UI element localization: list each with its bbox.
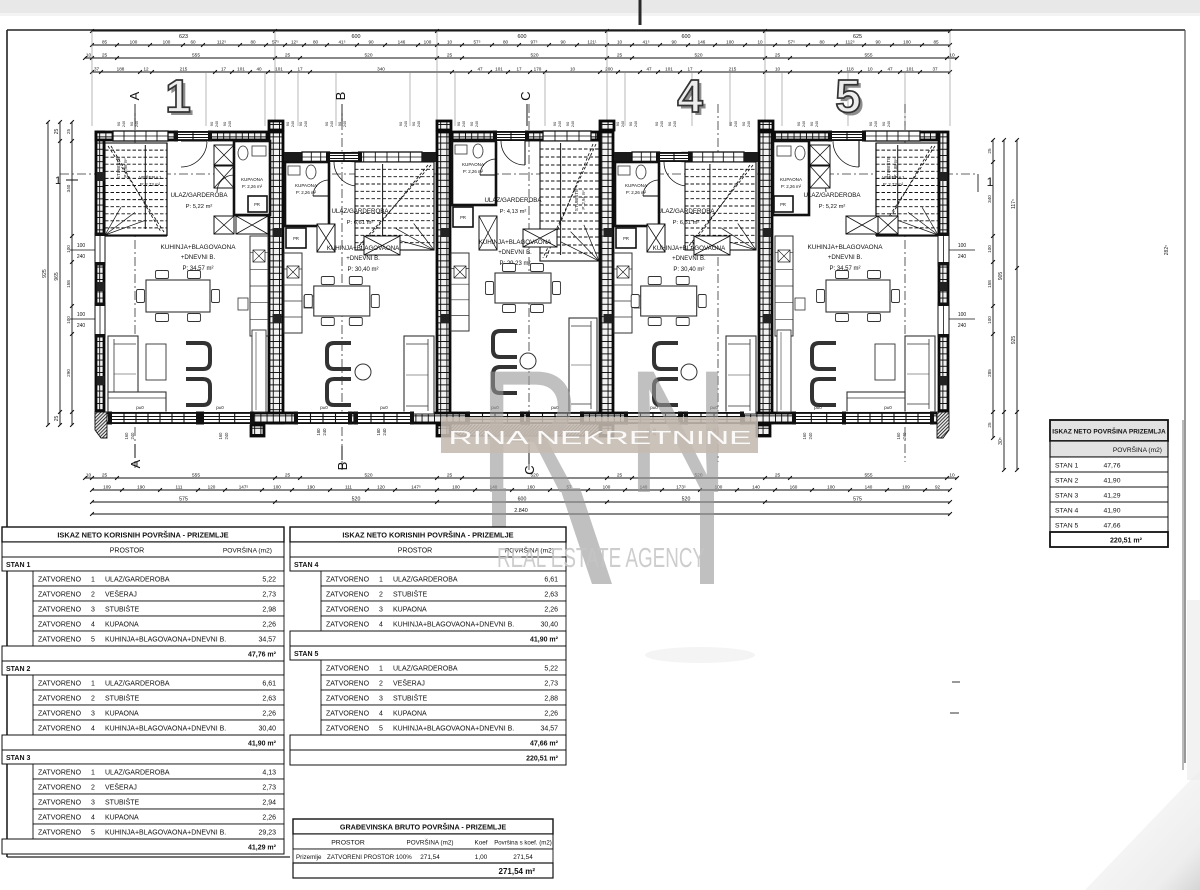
svg-text:90: 90 [222, 121, 227, 126]
svg-text:10: 10 [617, 40, 623, 45]
svg-text:25: 25 [54, 416, 60, 422]
svg-text:2,94: 2,94 [262, 800, 276, 807]
svg-text:90: 90 [565, 121, 570, 126]
svg-text:10: 10 [757, 40, 763, 45]
svg-text:STAN 4: STAN 4 [294, 562, 318, 569]
svg-text:158: 158 [987, 280, 992, 288]
svg-text:90: 90 [469, 121, 474, 126]
svg-text:POVRŠINA (m2): POVRŠINA (m2) [223, 546, 272, 555]
svg-text:240: 240 [77, 254, 86, 260]
svg-text:p±0: p±0 [136, 405, 144, 410]
svg-text:240: 240 [802, 121, 806, 127]
svg-text:190: 190 [307, 485, 315, 490]
svg-text:160: 160 [802, 432, 807, 440]
svg-text:STUBIŠTE: STUBIŠTE [115, 157, 121, 179]
svg-text:C: C [518, 91, 533, 100]
svg-text:47,66 m²: 47,66 m² [530, 741, 559, 748]
svg-text:2,63: 2,63 [544, 592, 558, 599]
svg-text:340: 340 [987, 195, 992, 203]
svg-text:p±0: p±0 [216, 405, 224, 410]
svg-text:282⁵: 282⁵ [1164, 245, 1170, 255]
svg-text:80: 80 [503, 40, 509, 45]
svg-text:180: 180 [376, 428, 381, 436]
svg-text:90: 90 [552, 121, 557, 126]
svg-text:2: 2 [91, 592, 95, 599]
svg-text:ZATVORENO: ZATVORENO [38, 637, 82, 644]
svg-text:KUHINJA+BLAGOVAONA: KUHINJA+BLAGOVAONA [479, 239, 552, 246]
svg-text:25: 25 [775, 473, 781, 479]
svg-text:p±0: p±0 [320, 405, 328, 410]
svg-text:12⁵: 12⁵ [291, 40, 298, 45]
svg-text:25: 25 [54, 129, 60, 135]
svg-text:2: 2 [379, 592, 383, 599]
svg-text:ZATVORENO: ZATVORENO [326, 726, 370, 733]
svg-text:P: 2,26 m²: P: 2,26 m² [242, 184, 263, 189]
svg-text:158: 158 [66, 280, 71, 288]
svg-text:41,90 m²: 41,90 m² [530, 637, 559, 644]
svg-text:4: 4 [379, 711, 383, 718]
svg-text:271,54 m²: 271,54 m² [499, 867, 536, 876]
svg-text:3: 3 [379, 696, 383, 703]
svg-text:ZATVORENO: ZATVORENO [326, 711, 370, 718]
svg-text:160: 160 [218, 432, 223, 440]
svg-text:p±0: p±0 [380, 405, 388, 410]
svg-text:80: 80 [819, 40, 825, 45]
svg-text:100: 100 [66, 316, 71, 324]
svg-text:3: 3 [379, 607, 383, 614]
svg-text:+DNEVNI B.: +DNEVNI B. [181, 254, 216, 261]
svg-text:STAN 1: STAN 1 [1055, 463, 1079, 470]
svg-text:146: 146 [398, 40, 406, 45]
svg-text:117⁵: 117⁵ [1011, 199, 1017, 209]
svg-text:240: 240 [815, 121, 819, 127]
svg-text:10: 10 [775, 67, 781, 72]
svg-text:6,61: 6,61 [544, 577, 558, 584]
svg-text:240: 240 [634, 121, 638, 127]
svg-text:80: 80 [313, 40, 319, 45]
svg-text:240: 240 [330, 121, 334, 127]
svg-text:1,00: 1,00 [475, 854, 488, 861]
svg-text:ULAZ/GARDEROBA: ULAZ/GARDEROBA [657, 208, 715, 215]
svg-text:P: 6,61 m²: P: 6,61 m² [347, 220, 374, 226]
svg-text:ZATVORENO: ZATVORENO [326, 681, 370, 688]
svg-text:215: 215 [729, 67, 737, 72]
svg-text:1: 1 [165, 70, 191, 122]
svg-text:120: 120 [377, 485, 385, 490]
svg-text:101: 101 [237, 67, 245, 72]
svg-text:4: 4 [379, 622, 383, 629]
svg-text:VEŠERAJ: VEŠERAJ [105, 783, 137, 792]
svg-text:ULAZ/GARDEROBA: ULAZ/GARDEROBA [484, 197, 542, 204]
svg-text:5: 5 [91, 830, 95, 837]
svg-text:100: 100 [726, 40, 734, 45]
svg-text:41,90: 41,90 [1103, 478, 1120, 485]
svg-text:90: 90 [116, 121, 121, 126]
svg-text:ULAZ/GARDEROBA: ULAZ/GARDEROBA [393, 666, 458, 673]
svg-text:112⁵: 112⁵ [845, 40, 854, 45]
svg-text:240: 240 [673, 121, 677, 127]
svg-text:3: 3 [91, 800, 95, 807]
svg-text:100: 100 [958, 243, 967, 249]
svg-text:555: 555 [192, 53, 200, 59]
svg-text:240: 240 [734, 121, 738, 127]
svg-text:P: 5,22 m²: P: 5,22 m² [819, 204, 846, 210]
svg-text:KUPAONA: KUPAONA [462, 162, 485, 167]
svg-text:90: 90 [398, 121, 403, 126]
svg-text:KUPAONA: KUPAONA [105, 815, 139, 822]
svg-text:KUPAONA: KUPAONA [393, 607, 427, 614]
svg-text:B: B [333, 92, 348, 101]
svg-text:240: 240 [404, 121, 408, 127]
svg-text:100: 100 [603, 485, 611, 490]
svg-text:47: 47 [477, 67, 483, 72]
svg-text:STAN 5: STAN 5 [294, 651, 318, 658]
svg-text:140: 140 [752, 485, 760, 490]
svg-text:40: 40 [256, 67, 262, 72]
svg-text:KUHINJA+BLAGOVAONA+DNEVNI B.: KUHINJA+BLAGOVAONA+DNEVNI B. [105, 726, 226, 733]
svg-text:623: 623 [179, 34, 188, 40]
svg-text:POVRŠINA (m2): POVRŠINA (m2) [1113, 445, 1162, 454]
svg-text:Prizemlje: Prizemlje [296, 854, 322, 861]
svg-text:2,26: 2,26 [262, 815, 276, 822]
svg-text:100: 100 [77, 312, 86, 318]
svg-text:17: 17 [221, 67, 227, 72]
svg-text:ULAZ/GARDEROBA: ULAZ/GARDEROBA [105, 681, 170, 688]
svg-text:57⁵: 57⁵ [473, 40, 480, 45]
svg-text:p±0: p±0 [814, 405, 822, 410]
svg-text:240: 240 [224, 432, 229, 440]
svg-text:240: 240 [902, 432, 907, 440]
svg-text:ULAZ/GARDEROBA: ULAZ/GARDEROBA [105, 577, 170, 584]
svg-text:P: 30,40 m²: P: 30,40 m² [347, 267, 378, 273]
svg-text:170: 170 [534, 67, 542, 72]
svg-text:4: 4 [677, 70, 703, 122]
svg-text:ULAZ/GARDEROBA: ULAZ/GARDEROBA [170, 192, 228, 199]
svg-text:ZATVORENO: ZATVORENO [38, 785, 82, 792]
svg-text:ZATVORENO: ZATVORENO [38, 577, 82, 584]
svg-text:160: 160 [124, 432, 129, 440]
svg-text:100: 100 [827, 485, 835, 490]
svg-text:109: 109 [902, 485, 910, 490]
svg-text:PR: PR [254, 202, 260, 207]
svg-text:121¹: 121¹ [587, 40, 597, 45]
svg-text:147⁵: 147⁵ [239, 485, 249, 490]
svg-text:P: 2,88 m²: P: 2,88 m² [893, 158, 898, 178]
svg-text:ISKAZ NETO POVRŠINA PRIZEMLJA: ISKAZ NETO POVRŠINA PRIZEMLJA [1052, 427, 1166, 436]
svg-text:25: 25 [447, 53, 453, 59]
svg-text:STUBIŠTE: STUBIŠTE [105, 798, 140, 807]
svg-text:KUPAONA: KUPAONA [241, 177, 264, 182]
svg-text:188: 188 [117, 67, 125, 72]
svg-text:90: 90 [560, 40, 566, 45]
svg-text:147⁵: 147⁵ [411, 485, 421, 490]
svg-text:25: 25 [987, 148, 992, 154]
svg-text:100: 100 [987, 245, 992, 253]
svg-text:p±0: p±0 [884, 405, 892, 410]
svg-text:2,73: 2,73 [262, 592, 276, 599]
svg-text:220,51 m²: 220,51 m² [526, 756, 559, 763]
svg-text:ZATVORENO: ZATVORENO [38, 592, 82, 599]
svg-text:925: 925 [42, 269, 48, 278]
svg-text:2,26: 2,26 [262, 711, 276, 718]
svg-text:2,73: 2,73 [544, 681, 558, 688]
svg-text:160: 160 [790, 485, 798, 490]
svg-text:47: 47 [887, 67, 893, 72]
svg-text:34,57: 34,57 [540, 726, 558, 733]
svg-text:STUBIŠTE: STUBIŠTE [393, 694, 428, 703]
svg-text:120: 120 [208, 485, 216, 490]
svg-text:90: 90 [868, 121, 873, 126]
svg-text:240: 240 [874, 121, 878, 127]
svg-text:ZATVORENO: ZATVORENO [38, 830, 82, 837]
svg-text:10: 10 [867, 67, 873, 72]
svg-text:1: 1 [379, 577, 383, 584]
svg-text:ULAZ/GARDEROBA: ULAZ/GARDEROBA [105, 770, 170, 777]
svg-text:90: 90 [628, 121, 633, 126]
svg-text:2: 2 [379, 681, 383, 688]
svg-text:A: A [127, 91, 142, 100]
svg-text:57⁵: 57⁵ [788, 40, 795, 45]
svg-text:5: 5 [91, 637, 95, 644]
svg-text:GRAĐEVINSKA BRUTO POVRŠINA - P: GRAĐEVINSKA BRUTO POVRŠINA - PRIZEMLJE [340, 823, 506, 832]
svg-text:30⁵: 30⁵ [998, 437, 1004, 445]
svg-text:2: 2 [91, 696, 95, 703]
svg-text:240: 240 [382, 428, 387, 436]
svg-text:25: 25 [447, 473, 453, 479]
svg-text:3: 3 [91, 711, 95, 718]
svg-text:25: 25 [102, 53, 108, 59]
svg-text:85: 85 [102, 40, 108, 45]
svg-text:520: 520 [352, 496, 361, 502]
svg-text:290: 290 [66, 369, 71, 377]
svg-text:520: 520 [694, 53, 702, 59]
svg-text:520: 520 [530, 53, 538, 59]
svg-text:240: 240 [322, 428, 327, 436]
svg-text:90: 90 [671, 40, 677, 45]
svg-text:34,57: 34,57 [258, 637, 276, 644]
svg-text:25: 25 [617, 473, 623, 479]
svg-text:+DNEVNI B.: +DNEVNI B. [346, 256, 380, 262]
svg-text:2,88: 2,88 [544, 696, 558, 703]
svg-text:240: 240 [808, 432, 813, 440]
svg-text:KUPAONA: KUPAONA [105, 622, 139, 629]
svg-text:ZATVORENO: ZATVORENO [38, 607, 82, 614]
svg-text:90: 90 [456, 121, 461, 126]
svg-text:PR: PR [623, 236, 629, 241]
svg-text:+DNEVNI B.: +DNEVNI B. [828, 254, 863, 261]
svg-text:240: 240 [621, 121, 625, 127]
svg-text:60: 60 [190, 40, 196, 45]
svg-text:100: 100 [273, 485, 281, 490]
svg-text:100: 100 [66, 245, 71, 253]
svg-text:KUHINJA+BLAGOVAONA: KUHINJA+BLAGOVAONA [808, 244, 884, 251]
svg-text:240: 240 [958, 254, 967, 260]
svg-text:A: A [128, 459, 143, 468]
svg-text:10: 10 [447, 40, 453, 45]
svg-text:100: 100 [77, 243, 86, 249]
svg-text:2,26: 2,26 [262, 622, 276, 629]
svg-text:ZATVORENO: ZATVORENO [326, 666, 370, 673]
svg-text:30,40: 30,40 [540, 622, 558, 629]
svg-text:100: 100 [987, 316, 992, 324]
svg-text:240: 240 [343, 121, 347, 127]
svg-text:575: 575 [179, 496, 188, 502]
svg-text:ISKAZ NETO KORISNIH POVRŠINA -: ISKAZ NETO KORISNIH POVRŠINA - PRIZEMLJE [342, 531, 513, 540]
svg-text:240: 240 [122, 121, 126, 127]
svg-text:12: 12 [143, 67, 149, 72]
svg-text:STUBIŠTE: STUBIŠTE [105, 694, 140, 703]
svg-text:STAN 2: STAN 2 [1055, 478, 1079, 485]
svg-text:600: 600 [352, 34, 361, 40]
svg-text:90: 90 [324, 121, 329, 126]
svg-text:47,76: 47,76 [1103, 463, 1120, 470]
svg-text:97⁵: 97⁵ [530, 40, 537, 45]
svg-text:ZATVORENO: ZATVORENO [38, 800, 82, 807]
svg-text:100: 100 [903, 40, 911, 45]
svg-text:1: 1 [91, 681, 95, 688]
svg-text:80: 80 [250, 40, 256, 45]
svg-text:P: 5,22 m²: P: 5,22 m² [186, 204, 213, 210]
svg-text:KUHINJA+BLAGOVAONA+DNEVNI B.: KUHINJA+BLAGOVAONA+DNEVNI B. [105, 830, 226, 837]
svg-text:+DNEVNI B.: +DNEVNI B. [498, 250, 532, 256]
svg-text:2: 2 [91, 785, 95, 792]
svg-text:90: 90 [285, 121, 290, 126]
svg-text:10: 10 [570, 67, 576, 72]
svg-text:90: 90 [298, 121, 303, 126]
svg-text:57⁵: 57⁵ [272, 40, 279, 45]
svg-text:240: 240 [475, 121, 479, 127]
svg-text:41,90 m²: 41,90 m² [248, 741, 277, 748]
svg-text:17: 17 [516, 67, 522, 72]
svg-text:101: 101 [665, 67, 673, 72]
svg-text:965: 965 [54, 272, 60, 281]
svg-text:KUPAONA: KUPAONA [393, 711, 427, 718]
svg-text:240: 240 [660, 121, 664, 127]
svg-text:4: 4 [91, 815, 95, 822]
svg-text:ULAZ/GARDEROBA: ULAZ/GARDEROBA [803, 192, 861, 199]
svg-text:30,40: 30,40 [258, 726, 276, 733]
svg-text:17: 17 [297, 67, 303, 72]
svg-text:25: 25 [775, 53, 781, 59]
svg-text:25: 25 [987, 422, 992, 428]
svg-text:180: 180 [316, 428, 321, 436]
svg-text:240: 240 [958, 323, 967, 329]
svg-text:1: 1 [91, 577, 95, 584]
svg-text:5,22: 5,22 [262, 577, 276, 584]
svg-text:90: 90 [129, 121, 134, 126]
svg-text:905: 905 [998, 272, 1004, 281]
svg-text:37: 37 [94, 67, 100, 72]
svg-text:STUBIŠTE: STUBIŠTE [105, 605, 140, 614]
svg-text:VEŠERAJ: VEŠERAJ [882, 174, 904, 181]
svg-text:ZATVORENO: ZATVORENO [38, 815, 82, 822]
svg-text:KUPAONA: KUPAONA [625, 183, 648, 188]
svg-text:STUBIŠTE: STUBIŠTE [393, 590, 428, 599]
svg-text:240: 240 [304, 121, 308, 127]
svg-text:240: 240 [291, 121, 295, 127]
svg-text:PR: PR [460, 215, 466, 220]
svg-text:10: 10 [949, 473, 955, 479]
svg-text:90: 90 [809, 121, 814, 126]
svg-text:2,98: 2,98 [262, 607, 276, 614]
svg-text:240: 240 [887, 121, 891, 127]
svg-text:160: 160 [896, 432, 901, 440]
svg-text:240: 240 [417, 121, 421, 127]
svg-text:ZATVORENO: ZATVORENO [326, 592, 370, 599]
svg-text:271,54: 271,54 [420, 854, 440, 861]
svg-text:90: 90 [875, 40, 881, 45]
svg-text:100: 100 [452, 485, 460, 490]
svg-text:41⁵: 41⁵ [642, 40, 649, 45]
svg-text:240: 240 [130, 432, 135, 440]
svg-text:47: 47 [646, 67, 652, 72]
svg-text:100: 100 [130, 40, 138, 45]
svg-text:340: 340 [66, 184, 71, 192]
svg-text:101: 101 [275, 67, 283, 72]
svg-text:ZATVORENI PROSTOR 100%: ZATVORENI PROSTOR 100% [327, 854, 412, 861]
svg-text:140: 140 [865, 485, 873, 490]
svg-text:90: 90 [209, 121, 214, 126]
svg-text:1: 1 [91, 770, 95, 777]
svg-text:285: 285 [987, 369, 992, 377]
svg-text:112⁵: 112⁵ [217, 40, 226, 45]
svg-text:85: 85 [933, 40, 939, 45]
svg-text:P: 2,98 m²: P: 2,98 m² [123, 158, 128, 178]
svg-text:2,26: 2,26 [544, 607, 558, 614]
svg-text:P: 30,40 m²: P: 30,40 m² [673, 267, 704, 273]
svg-text:25: 25 [285, 53, 291, 59]
svg-text:240: 240 [558, 121, 562, 127]
svg-text:P: 4,13 m²: P: 4,13 m² [500, 209, 527, 215]
svg-text:+DNEVNI B.: +DNEVNI B. [672, 256, 706, 262]
svg-text:100: 100 [424, 40, 432, 45]
svg-text:5: 5 [835, 70, 861, 122]
svg-text:B: B [335, 462, 350, 471]
svg-text:271,54: 271,54 [513, 854, 533, 861]
svg-text:90: 90 [615, 121, 620, 126]
svg-text:25: 25 [617, 53, 623, 59]
svg-text:600: 600 [518, 34, 527, 40]
svg-text:STAN 5: STAN 5 [1055, 523, 1079, 530]
svg-text:600: 600 [682, 34, 691, 40]
svg-text:P: 2,94 m²: P: 2,94 m² [581, 190, 586, 210]
svg-text:POVRŠINA (m2): POVRŠINA (m2) [407, 838, 454, 847]
svg-text:90: 90 [411, 121, 416, 126]
svg-text:STAN 1: STAN 1 [6, 562, 30, 569]
svg-text:RINA NEKRETNINE: RINA NEKRETNINE [449, 427, 752, 448]
svg-text:220,51 m²: 220,51 m² [1110, 538, 1143, 545]
svg-text:520: 520 [364, 53, 372, 59]
svg-text:KUHINJA+BLAGOVAONA+DNEVNI B.: KUHINJA+BLAGOVAONA+DNEVNI B. [393, 726, 514, 733]
svg-text:29,23: 29,23 [258, 830, 276, 837]
svg-text:925: 925 [1011, 336, 1017, 345]
svg-text:REAL ESTATE AGENCY: REAL ESTATE AGENCY [497, 542, 705, 573]
svg-text:240: 240 [77, 323, 86, 329]
svg-text:PROSTOR: PROSTOR [110, 548, 145, 555]
svg-text:PROSTOR: PROSTOR [331, 840, 365, 847]
svg-text:111: 111 [345, 485, 352, 490]
svg-text:90: 90 [654, 121, 659, 126]
svg-text:240: 240 [571, 121, 575, 127]
svg-text:1: 1 [379, 666, 383, 673]
svg-text:KUPAONA: KUPAONA [295, 183, 318, 188]
svg-text:P: 2,73 m²: P: 2,73 m² [140, 182, 161, 187]
svg-text:STAN 4: STAN 4 [1055, 508, 1079, 515]
svg-text:6,61: 6,61 [262, 681, 276, 688]
svg-text:240: 240 [215, 121, 219, 127]
svg-text:P: 2,73 m²: P: 2,73 m² [883, 182, 904, 187]
svg-text:90: 90 [337, 121, 342, 126]
